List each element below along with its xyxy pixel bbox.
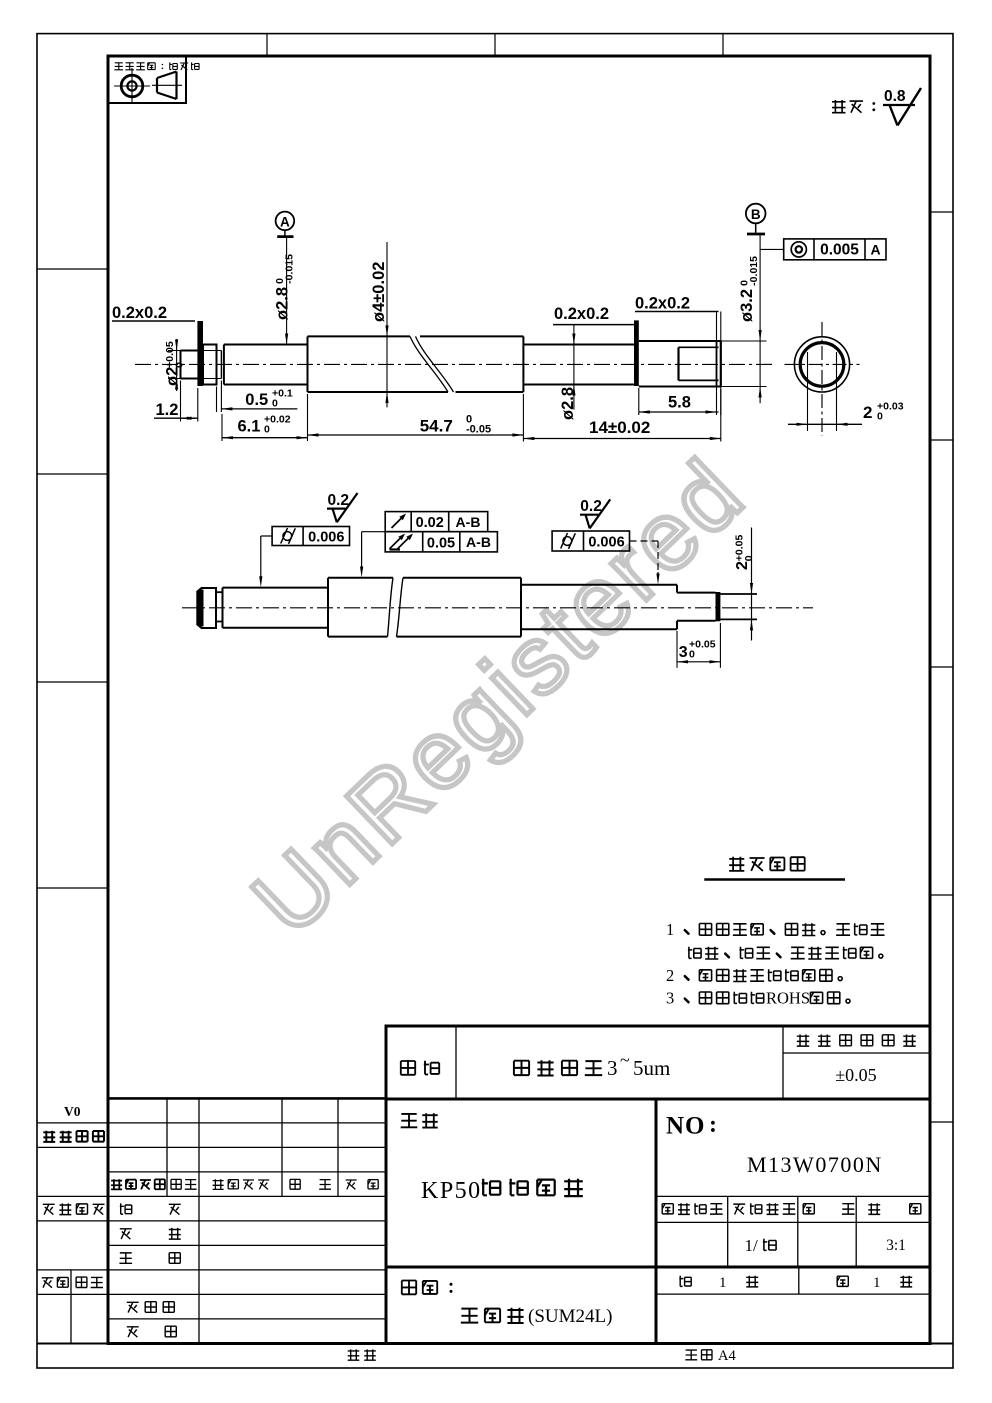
svg-text:0.2: 0.2 [580, 498, 602, 515]
svg-text:0.5: 0.5 [245, 391, 268, 409]
svg-text:A4: A4 [718, 1348, 736, 1364]
svg-text:0: 0 [877, 411, 883, 423]
svg-text:-0.015: -0.015 [284, 254, 296, 284]
svg-text:2: 2 [863, 403, 872, 422]
svg-text:5um: 5um [633, 1056, 670, 1080]
svg-text:0.006: 0.006 [588, 535, 624, 551]
svg-text:2: 2 [734, 561, 751, 570]
svg-text:3: 3 [679, 644, 688, 661]
svg-text:0: 0 [174, 362, 186, 368]
svg-text:-0.015: -0.015 [748, 256, 760, 286]
svg-text:0: 0 [743, 555, 755, 561]
svg-text:1: 1 [873, 1275, 881, 1291]
svg-text:0.2x0.2: 0.2x0.2 [112, 304, 167, 322]
svg-text:ø2.8: ø2.8 [274, 287, 292, 320]
svg-text:A: A [280, 214, 290, 229]
svg-text:0.2x0.2: 0.2x0.2 [635, 295, 690, 313]
svg-text:A-B: A-B [456, 514, 481, 530]
svg-text:0.005: 0.005 [820, 242, 859, 259]
svg-text:0.8: 0.8 [884, 88, 906, 105]
svg-text:ø2: ø2 [164, 367, 182, 386]
svg-text:1: 1 [719, 1275, 727, 1291]
svg-text:1/: 1/ [745, 1236, 759, 1255]
svg-text:2: 2 [666, 966, 674, 985]
svg-text:ROHS: ROHS [766, 989, 810, 1008]
svg-text:A: A [870, 241, 880, 257]
svg-text:14±0.02: 14±0.02 [589, 418, 650, 437]
svg-text:-0.05: -0.05 [466, 424, 491, 436]
svg-text:3: 3 [666, 989, 674, 1008]
svg-text:~: ~ [620, 1050, 630, 1070]
svg-text:0.02: 0.02 [416, 515, 444, 531]
svg-text:KP50: KP50 [421, 1178, 482, 1204]
svg-text:NO: NO [666, 1113, 706, 1140]
svg-text:54.7: 54.7 [420, 417, 453, 436]
svg-text:1: 1 [666, 920, 674, 939]
svg-text:5.8: 5.8 [668, 394, 691, 412]
svg-text:M13W0700N: M13W0700N [747, 1152, 883, 1177]
svg-text:3: 3 [607, 1056, 618, 1080]
svg-text:V0: V0 [64, 1104, 81, 1119]
svg-text:±0.05: ±0.05 [835, 1065, 876, 1085]
svg-text:A-B: A-B [466, 534, 491, 550]
svg-text:ø3.2: ø3.2 [738, 289, 756, 322]
svg-text:1.2: 1.2 [156, 401, 179, 419]
svg-text:0.05: 0.05 [427, 535, 455, 551]
svg-text:0.006: 0.006 [308, 529, 344, 545]
svg-text:3:1: 3:1 [886, 1237, 906, 1254]
svg-text:0: 0 [689, 649, 695, 661]
svg-text:0.2: 0.2 [328, 492, 350, 509]
svg-text:(SUM24L): (SUM24L) [528, 1306, 612, 1327]
svg-text:0: 0 [264, 424, 270, 436]
svg-text:0: 0 [272, 398, 278, 410]
svg-text:ø4±0.02: ø4±0.02 [370, 262, 388, 322]
svg-text:6.1: 6.1 [238, 418, 261, 436]
svg-text:B: B [751, 207, 761, 222]
svg-text::: : [709, 1112, 717, 1138]
svg-text:0.2x0.2: 0.2x0.2 [554, 305, 609, 323]
